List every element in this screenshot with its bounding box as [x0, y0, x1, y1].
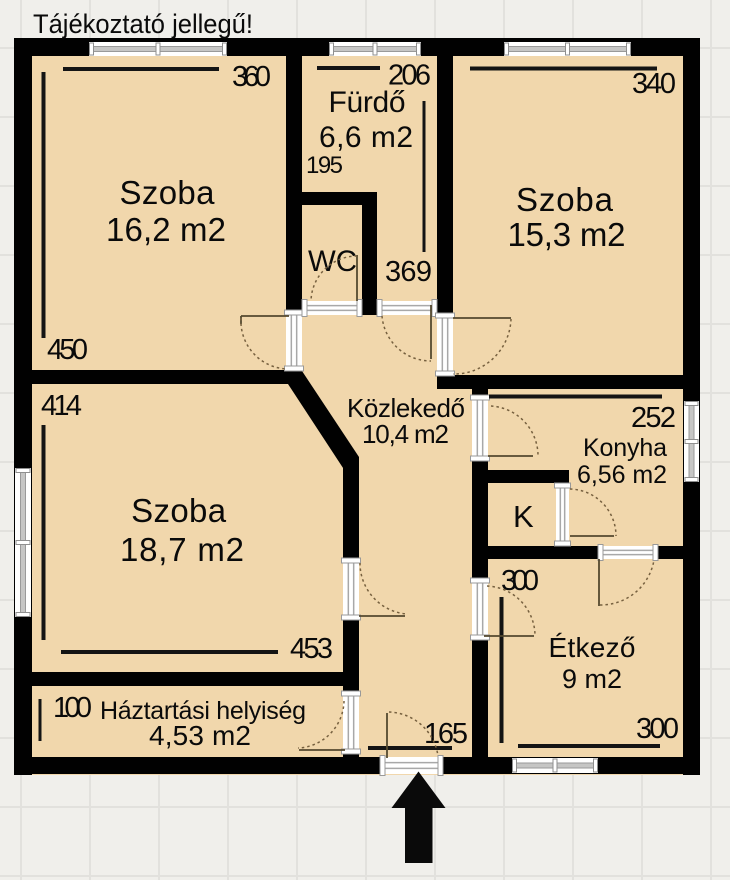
svg-text:100: 100 — [53, 692, 92, 724]
svg-text:Szoba: Szoba — [516, 181, 614, 218]
svg-text:Konyha: Konyha — [583, 434, 667, 462]
svg-text:Étkező: Étkező — [549, 632, 636, 663]
svg-text:300: 300 — [636, 713, 679, 745]
svg-text:252: 252 — [631, 402, 676, 434]
svg-text:WC: WC — [308, 245, 357, 278]
svg-text:195: 195 — [306, 152, 343, 179]
svg-text:453: 453 — [290, 633, 333, 665]
svg-text:K: K — [513, 499, 534, 534]
svg-text:Szoba: Szoba — [131, 492, 227, 529]
svg-text:Tájékoztató jellegű!: Tájékoztató jellegű! — [33, 9, 253, 39]
svg-text:206: 206 — [388, 60, 431, 92]
svg-text:4,53 m2: 4,53 m2 — [149, 720, 251, 751]
svg-text:165: 165 — [424, 718, 468, 750]
svg-text:300: 300 — [501, 565, 539, 597]
svg-text:18,7 m2: 18,7 m2 — [120, 531, 244, 568]
svg-text:10,4 m2: 10,4 m2 — [362, 419, 449, 449]
svg-text:414: 414 — [41, 390, 82, 422]
svg-text:16,2 m2: 16,2 m2 — [106, 211, 226, 248]
svg-text:369: 369 — [385, 256, 432, 288]
svg-text:450: 450 — [47, 334, 88, 366]
svg-text:360: 360 — [232, 61, 271, 93]
svg-text:340: 340 — [632, 68, 676, 100]
svg-text:Szoba: Szoba — [120, 174, 216, 211]
svg-text:15,3 m2: 15,3 m2 — [508, 216, 626, 253]
svg-text:6,56 m2: 6,56 m2 — [577, 461, 667, 489]
svg-text:9 m2: 9 m2 — [562, 664, 622, 694]
svg-text:6,6 m2: 6,6 m2 — [319, 121, 413, 154]
